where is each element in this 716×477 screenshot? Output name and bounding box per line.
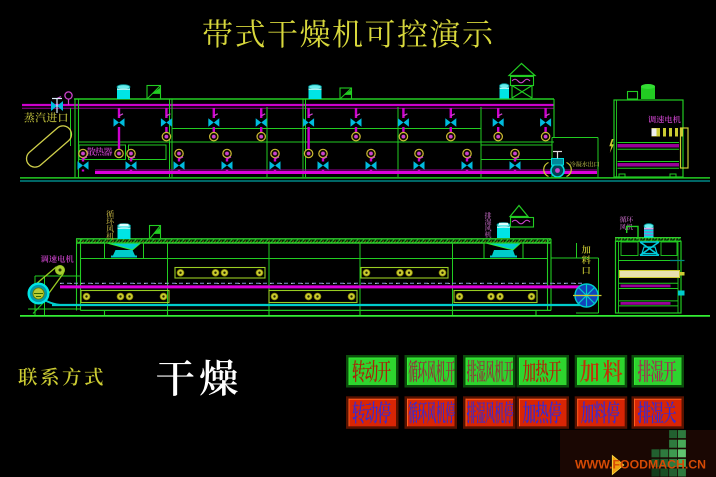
svg-text:WWW.FOODMACH.CN: WWW.FOODMACH.CN bbox=[575, 458, 706, 472]
